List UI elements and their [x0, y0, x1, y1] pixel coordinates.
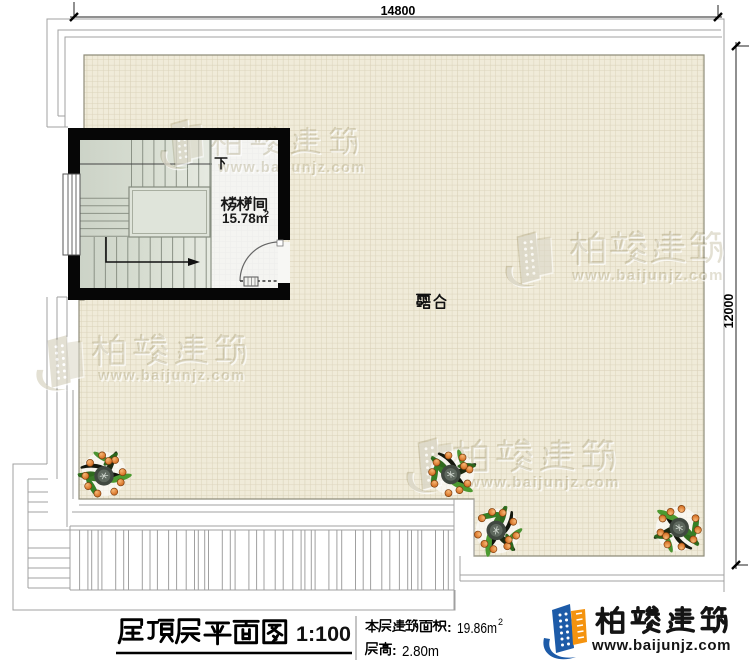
svg-text:2: 2: [498, 617, 503, 627]
svg-text:2.80m: 2.80m: [402, 643, 439, 660]
svg-text:15.78m: 15.78m: [222, 211, 268, 226]
svg-text:www.baijunjz.com: www.baijunjz.com: [97, 368, 246, 384]
svg-text:www.baijunjz.com: www.baijunjz.com: [217, 160, 366, 176]
svg-text::: :: [392, 642, 397, 658]
svg-text:www.baijunjz.com: www.baijunjz.com: [591, 637, 731, 654]
svg-text:2: 2: [264, 209, 269, 219]
svg-text:12000: 12000: [722, 294, 736, 329]
svg-text:www.baijunjz.com: www.baijunjz.com: [571, 267, 724, 284]
svg-text:www.baijunjz.com: www.baijunjz.com: [467, 474, 620, 491]
svg-text:19.86m: 19.86m: [457, 620, 497, 637]
svg-text::: :: [447, 619, 452, 635]
svg-text:1:100: 1:100: [296, 622, 351, 646]
svg-text:14800: 14800: [381, 4, 416, 18]
